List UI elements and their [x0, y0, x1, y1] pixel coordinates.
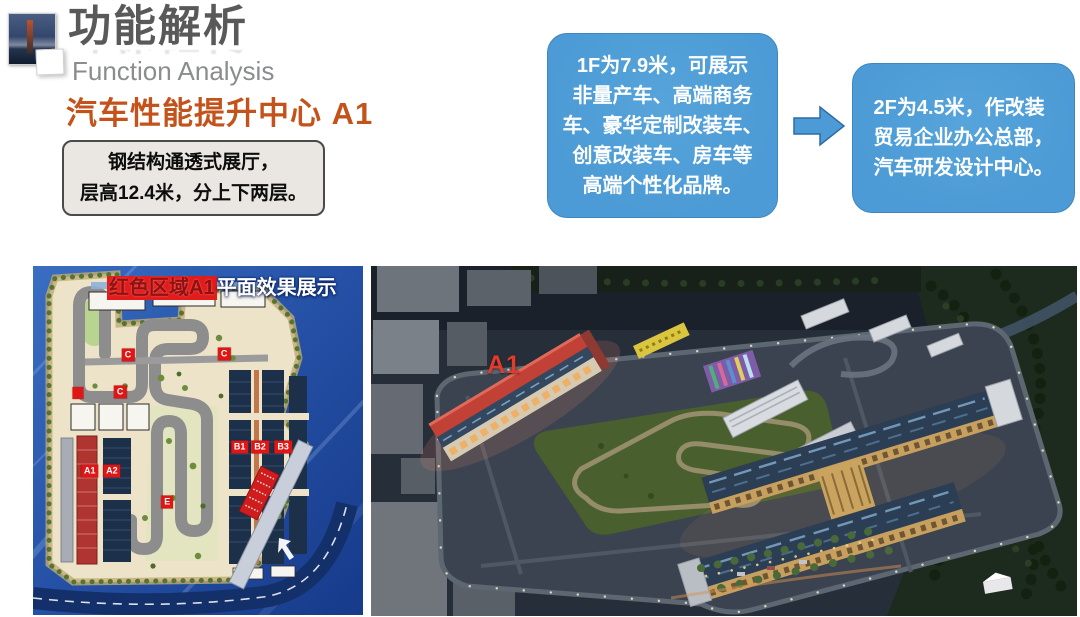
right-arrow-icon	[792, 104, 846, 148]
building-label-c: C	[122, 348, 135, 361]
building-label-b2: B2	[251, 440, 269, 453]
building-label-c: C	[114, 385, 127, 398]
building-label-c: C	[218, 347, 231, 360]
page-title: 功能解析	[68, 4, 488, 51]
building-a2	[103, 438, 131, 562]
page-corner-decoration	[36, 49, 65, 76]
building-label-a2: A2	[103, 464, 121, 477]
building-label-b3: B3	[274, 440, 292, 453]
slide-logo	[8, 13, 58, 71]
building-label-b1: B1	[231, 440, 249, 453]
caption-highlight: 红色区域A1	[107, 276, 217, 300]
aerial-render-image: A1	[371, 266, 1077, 616]
section-heading: 汽车性能提升中心 A1	[66, 88, 373, 133]
page-subtitle: Function Analysis	[72, 56, 488, 87]
site-plan-caption: 红色区域A1平面效果展示	[107, 271, 337, 300]
service-road	[85, 358, 268, 362]
aerial-a1-label: A1	[487, 351, 521, 380]
callout-floor2: 2F为4.5米，作改装 贸易企业办公总部， 汽车研发设计中心。	[852, 63, 1075, 213]
building-label-e: E	[161, 495, 173, 508]
caption-rest: 平面效果展示	[217, 277, 337, 299]
presentation-slide: 功能解析 功能解析 Function Analysis 汽车性能提升中心 A1 …	[0, 0, 1080, 617]
site-plan-image: 红色区域A1平面效果展示 CCCA1A2B1B2B3E	[33, 266, 363, 615]
building-a1	[77, 436, 97, 564]
aerial-render-graphic	[371, 266, 1077, 616]
structure-note-box: 钢结构通透式展厅， 层高12.4米，分上下两层。	[62, 140, 325, 216]
site-plan-graphic	[33, 266, 363, 615]
building-label-a1: A1	[81, 464, 99, 477]
building-label	[72, 387, 83, 399]
callout-floor1: 1F为7.9米，可展示 非量产车、高端商务 车、豪华定制改装车、 创意改装车、房…	[547, 33, 778, 218]
title-block: 功能解析 功能解析 Function Analysis	[68, 4, 488, 87]
